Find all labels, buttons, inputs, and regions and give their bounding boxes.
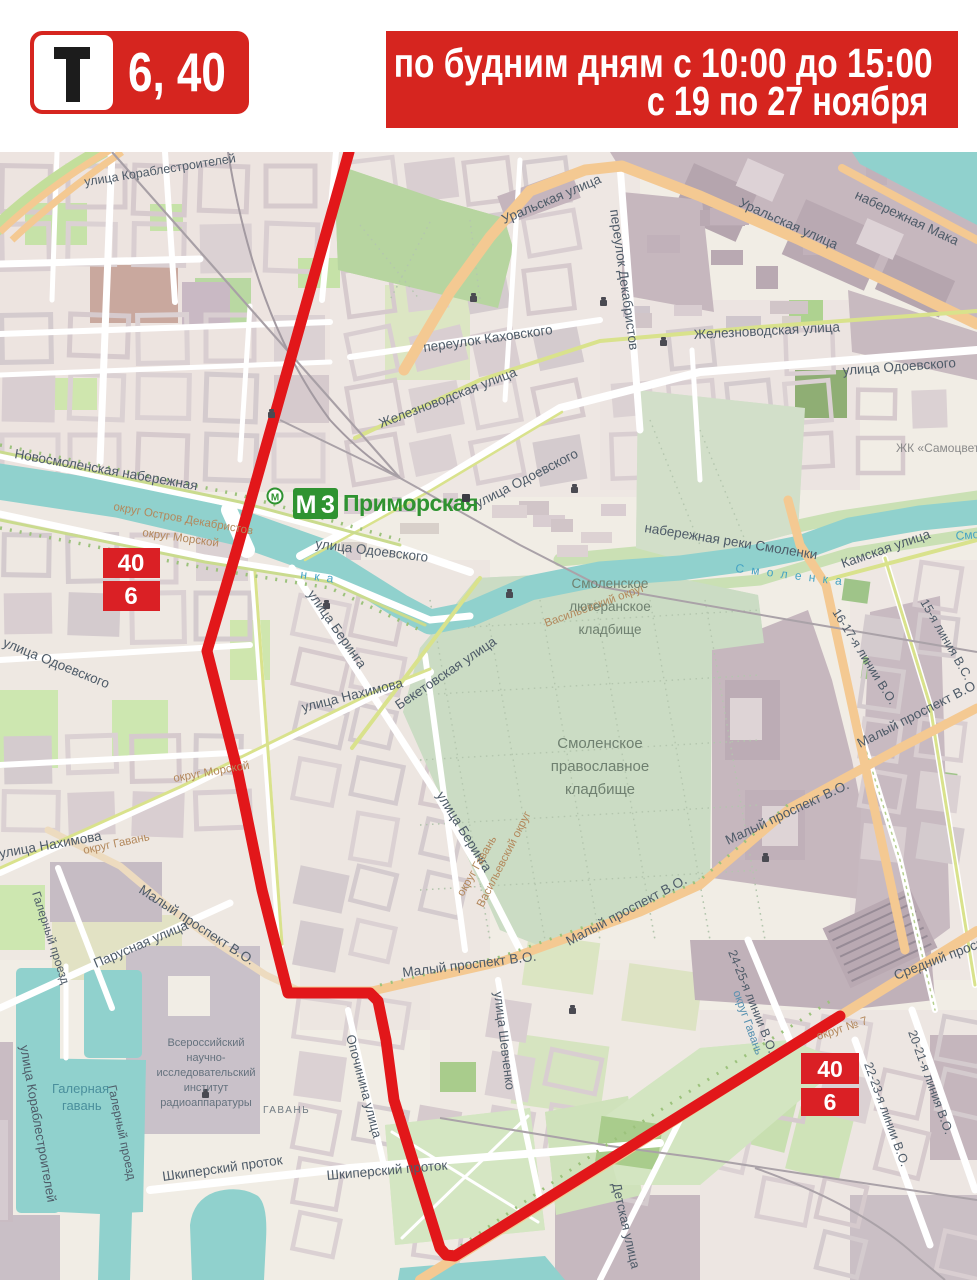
svg-text:М: М	[296, 491, 317, 519]
svg-text:кладбище: кладбище	[565, 781, 635, 798]
svg-text:Галерная: Галерная	[52, 1081, 109, 1096]
svg-text:православное: православное	[551, 758, 649, 775]
svg-text:ГАВАНЬ: ГАВАНЬ	[263, 1105, 310, 1116]
svg-text:лютеранское: лютеранское	[569, 599, 651, 614]
svg-text:М: М	[271, 493, 279, 504]
svg-text:3: 3	[321, 491, 335, 519]
svg-text:6: 6	[824, 1089, 837, 1115]
svg-text:кладбище: кладбище	[578, 622, 641, 637]
svg-text:Приморская: Приморская	[343, 490, 478, 516]
svg-text:ЖК «Самоцветы»: ЖК «Самоцветы»	[896, 441, 977, 455]
svg-text:Смоленское: Смоленское	[557, 735, 642, 752]
svg-text:научно-: научно-	[186, 1052, 225, 1064]
svg-text:радиоаппаратуры: радиоаппаратуры	[160, 1097, 252, 1109]
svg-text:6: 6	[124, 583, 137, 610]
svg-text:40: 40	[118, 550, 145, 577]
svg-text:40: 40	[817, 1056, 843, 1082]
svg-text:Всероссийский: Всероссийский	[167, 1037, 244, 1049]
svg-text:гавань: гавань	[62, 1098, 102, 1113]
svg-text:Смоленское: Смоленское	[572, 576, 649, 591]
svg-text:Смо: Смо	[955, 527, 977, 543]
svg-text:исследовательский: исследовательский	[157, 1067, 256, 1079]
svg-text:институт: институт	[184, 1082, 229, 1094]
